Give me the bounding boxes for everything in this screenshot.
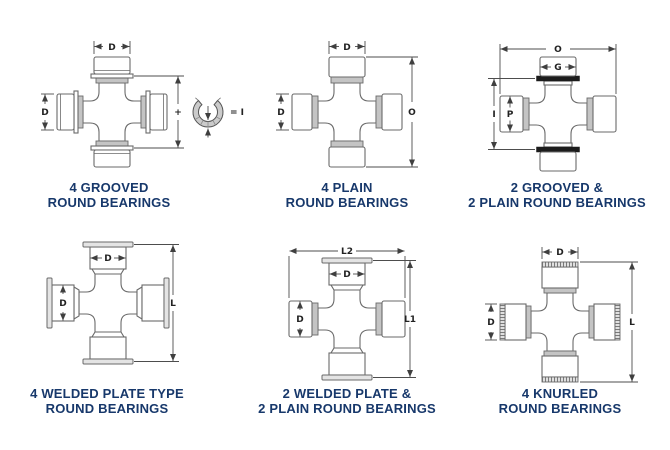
dim-label-cap-width: D [104, 254, 111, 264]
dim-label-left-diameter: D [277, 108, 284, 118]
caption-2-welded-2-plain: 2 WELDED PLATE & 2 PLAIN ROUND BEARINGS [237, 387, 457, 416]
knurl-band-left [500, 304, 505, 340]
caption-line: 2 GROOVED & [447, 181, 667, 196]
caption-line: ROUND BEARINGS [460, 402, 660, 417]
caption-line: ROUND BEARINGS [7, 402, 207, 417]
cross-body [500, 262, 620, 382]
caption-4-plain: 4 PLAIN ROUND BEARINGS [252, 181, 442, 210]
snap-ring-icon: = I [193, 98, 244, 138]
dim-label-cap-diameter: D [59, 299, 66, 309]
diagram-4-welded-plate-round-bearings: D D L [0, 235, 220, 385]
diagram-2-welded-plate-2-plain-round-bearings: L2 D D L1 [250, 235, 470, 385]
caption-4-knurled: 4 KNURLED ROUND BEARINGS [460, 387, 660, 416]
groove-ring-top [537, 76, 580, 81]
knurl-band-right [615, 304, 620, 340]
weld-plate-left [47, 278, 52, 328]
caption-4-welded-plate: 4 WELDED PLATE TYPE ROUND BEARINGS [7, 387, 207, 416]
weld-plate-top [83, 242, 133, 247]
knurl-band-top [542, 262, 578, 267]
dim-label-length: L [170, 299, 176, 309]
weld-plate-bottom [322, 375, 372, 380]
caption-line: 4 KNURLED [460, 387, 660, 402]
dim-label-length: L1 [404, 315, 416, 325]
caption-line: 4 WELDED PLATE TYPE [7, 387, 207, 402]
dim-label-cap-width: G [554, 63, 561, 73]
dim-label-cap-width: D [343, 270, 350, 280]
caption-line: 4 GROOVED [14, 181, 204, 196]
weld-plate-right [164, 278, 169, 328]
dim-label-overall: O [408, 108, 416, 118]
dim-label-equals-i: = I [230, 108, 244, 118]
cross-body [57, 57, 167, 167]
caption-line: 4 PLAIN [252, 181, 442, 196]
dim-label-top-width: D [556, 248, 563, 258]
knurl-band-bottom [542, 377, 578, 382]
cross-body [500, 57, 616, 171]
diagram-4-plain-round-bearings: D D O [255, 0, 440, 175]
caption-line: 2 WELDED PLATE & [237, 387, 457, 402]
dim-label-cap-diameter: P [507, 110, 514, 120]
groove-ring-bottom [537, 147, 580, 152]
dim-label-inner-span: I [492, 110, 495, 120]
dim-label-overall-width: L2 [341, 247, 353, 257]
caption-4-grooved: 4 GROOVED ROUND BEARINGS [14, 181, 204, 210]
caption-line: 2 PLAIN ROUND BEARINGS [237, 402, 457, 417]
diagram-4-knurled-round-bearings: D D L [460, 235, 670, 385]
bearing-types-diagram-sheet: D D + = I [0, 0, 670, 450]
dim-label-left-diameter: D [487, 318, 494, 328]
caption-line: ROUND BEARINGS [252, 196, 442, 211]
dim-label-left-diameter: D [41, 108, 48, 118]
weld-plate-bottom [83, 359, 133, 364]
dim-label-overall: O [554, 45, 562, 55]
cross-body [292, 57, 402, 167]
dim-label-length: L [629, 318, 635, 328]
caption-2-grooved-2-plain: 2 GROOVED & 2 PLAIN ROUND BEARINGS [447, 181, 667, 210]
caption-line: 2 PLAIN ROUND BEARINGS [447, 196, 667, 211]
dim-label-cap-diameter: D [296, 315, 303, 325]
caption-line: ROUND BEARINGS [14, 196, 204, 211]
weld-plate-top [322, 258, 372, 263]
diagram-4-grooved-round-bearings: D D + = I [0, 0, 250, 175]
diagram-2-grooved-2-plain-round-bearings: O G I P [450, 0, 670, 175]
dim-label-plus: + [174, 108, 182, 118]
dim-label-top-width: D [108, 43, 115, 53]
dim-label-top-width: D [343, 43, 350, 53]
